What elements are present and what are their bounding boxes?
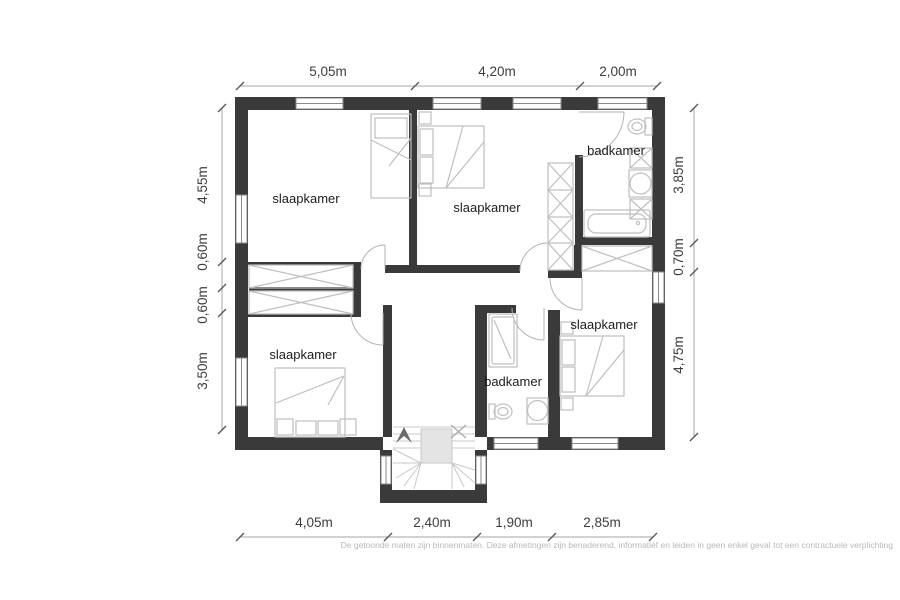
vestibule-closet [582, 246, 652, 271]
bathtub [584, 210, 650, 237]
single-bed [371, 114, 411, 198]
window [236, 195, 247, 243]
hall-closet [249, 265, 353, 288]
wall-bedroom-se-left [548, 310, 560, 437]
dim-label-top-3: 2,00m [599, 64, 637, 79]
wall-bathroom-top-bottom [575, 237, 652, 245]
double-bed [275, 368, 356, 437]
dim-label-left-4: 3,50m [195, 352, 210, 390]
window [494, 438, 538, 449]
dim-label-left-2: 0,60m [195, 233, 210, 271]
interior-walls [248, 110, 652, 437]
wall-bathroom-top-left [575, 155, 583, 237]
dimension-top: 5,05m 4,20m 2,00m [236, 64, 661, 90]
floor-plan-page: slaapkamer slaapkamer badkamer slaapkame… [0, 0, 900, 600]
wall-stairhall-left [383, 305, 392, 437]
staircase [393, 425, 475, 489]
door-bedroom-top-middle [520, 243, 548, 271]
shower [489, 314, 517, 367]
room-label-bedroom-top-middle: slaapkamer [453, 200, 521, 215]
wall-closet-side [353, 262, 361, 317]
room-label-bathroom-top-right: badkamer [587, 143, 645, 158]
dim-label-right-2: 0,70m [671, 238, 686, 276]
double-bed [560, 322, 624, 410]
washbasin [629, 170, 652, 197]
toilet [489, 404, 512, 419]
stair-core [421, 429, 452, 463]
dimension-left: 4,55m 0,60m 0,60m 3,50m [195, 104, 226, 434]
wall-stairhall-right [475, 305, 487, 437]
window [236, 358, 247, 406]
dim-label-right-3: 4,75m [671, 336, 686, 374]
room-label-bedroom-top-left: slaapkamer [272, 191, 340, 206]
wall-vestibule-horizontal [548, 270, 574, 278]
window [476, 456, 486, 484]
window [513, 98, 561, 109]
window [572, 438, 618, 449]
door-bedroom-bottom-right [550, 278, 582, 310]
dim-label-top-2: 4,20m [478, 64, 516, 79]
dim-label-bottom-1: 4,05m [295, 515, 333, 530]
dim-label-bottom-3: 1,90m [495, 515, 533, 530]
double-bed [418, 112, 484, 196]
dim-label-bottom-2: 2,40m [413, 515, 451, 530]
wall-corridor-top-b [417, 265, 520, 273]
room-label-bedroom-bottom-left: slaapkamer [269, 347, 337, 362]
floor-plan-svg: slaapkamer slaapkamer badkamer slaapkame… [0, 0, 900, 600]
window [381, 456, 391, 484]
washbasin [527, 398, 548, 424]
dim-label-bottom-4: 2,85m [583, 515, 621, 530]
window [598, 98, 647, 109]
window [296, 98, 343, 109]
window [433, 98, 481, 109]
wall-vestibule-riser [574, 245, 582, 278]
hall-closet [249, 291, 353, 314]
wall-stairbay-bottom [380, 490, 487, 503]
wall-bedrooms-divider [409, 110, 417, 273]
dimension-bottom: 4,05m 2,40m 1,90m 2,85m [236, 515, 657, 541]
bathroom-cabinet [630, 199, 652, 219]
toilet [628, 118, 652, 135]
wall-bottom-left [235, 437, 383, 450]
dim-label-left-1: 4,55m [195, 166, 210, 204]
door-bedroom-bottom-left [351, 313, 383, 345]
dim-label-right-1: 3,85m [671, 156, 686, 194]
door-bedroom-top-left [361, 245, 385, 269]
dim-label-left-3: 0,60m [195, 286, 210, 324]
dimension-right: 3,85m 0,70m 4,75m [671, 104, 698, 441]
wardrobe [548, 163, 573, 270]
wall-corridor-top-a [385, 265, 409, 273]
room-label-bathroom-bottom-middle: badkamer [484, 374, 542, 389]
furniture [249, 112, 652, 437]
window [653, 272, 664, 303]
room-label-bedroom-bottom-right: slaapkamer [570, 317, 638, 332]
dim-label-top-1: 5,05m [309, 64, 347, 79]
disclaimer-text: De getoonde maten zijn binnenmaten. Deze… [341, 540, 894, 550]
